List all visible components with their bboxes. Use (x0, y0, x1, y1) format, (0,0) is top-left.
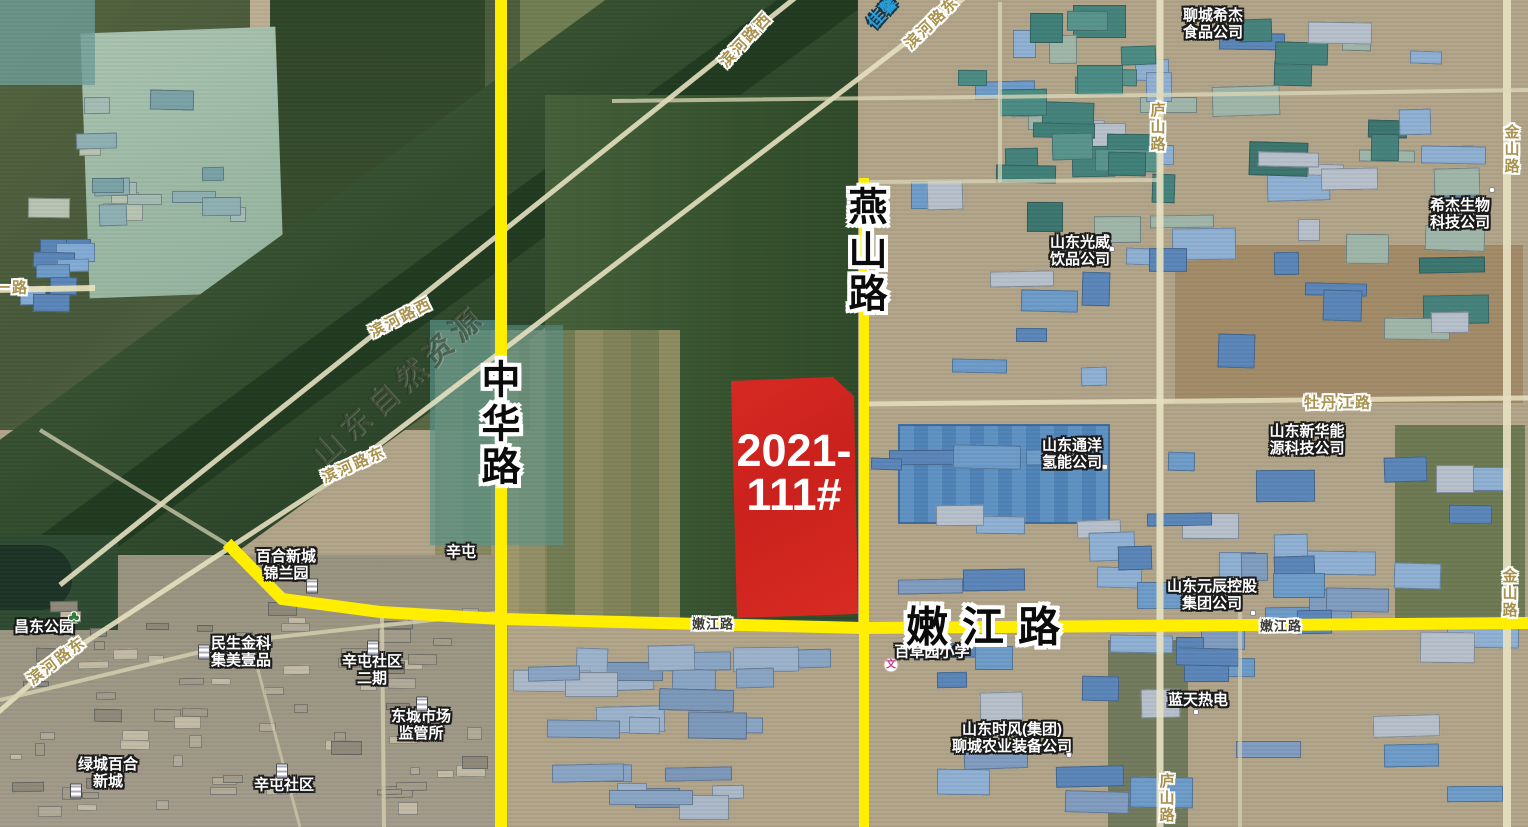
poi-line: 氢能公司 (1042, 454, 1102, 471)
poi-line: 科技公司 (1430, 214, 1490, 231)
poi-label-xinhua-energy: 山东新华能 源科技公司 (1269, 423, 1344, 458)
road-label-zhonghua: 中华路 (478, 359, 524, 490)
road-label-lushan: 庐山路 (1150, 103, 1167, 153)
poi-line: 源科技公司 (1269, 440, 1344, 457)
poi-dot (1066, 752, 1072, 758)
building-icon (416, 697, 428, 712)
poi-label-xintun-shequ: 辛屯社区 (254, 776, 314, 793)
poi-line: 绿城百合 (78, 756, 138, 773)
building-icon (306, 579, 318, 594)
poi-line: 饮品公司 (1050, 251, 1110, 268)
poi-line: 聊城农业装备公司 (952, 738, 1072, 755)
road-label-mudanjiang: 牡丹江路 (1304, 396, 1372, 411)
poi-line: 监管所 (391, 725, 451, 742)
poi-line: 辛屯 (446, 543, 476, 560)
poi-line: 昌东公园 (14, 618, 74, 635)
poi-label-yuanchen: 山东元辰控股 集团公司 (1167, 578, 1257, 613)
poi-line: 新城 (78, 773, 138, 790)
nenjiang-road-highlight (227, 543, 1528, 628)
poi-line: 百合新城 (256, 548, 316, 565)
poi-label-xintun: 辛屯 (446, 543, 476, 560)
poi-label-guangwei: 山东光威 饮品公司 (1050, 234, 1110, 269)
poi-line: 民生金科 (211, 635, 271, 652)
poi-label-lantian: 蓝天热电 (1168, 691, 1228, 708)
poi-line: 二期 (342, 670, 402, 687)
road-label-jinshan: 金山路 (1502, 569, 1519, 619)
road-label-yanshan: 燕山路 (845, 186, 891, 317)
poi-line: 辛屯社区 (254, 776, 314, 793)
building-icon (367, 641, 379, 656)
building-icon (276, 764, 288, 779)
poi-label-xintun-erqi: 辛屯社区 二期 (342, 653, 402, 688)
poi-label-baihe-jinlan: 百合新城 锦兰园 (256, 548, 316, 583)
poi-label-tongyang: 山东通洋 氢能公司 (1042, 437, 1102, 472)
poi-line: 山东新华能 (1269, 423, 1344, 440)
poi-label-lvcheng-baihe: 绿城百合 新城 (78, 756, 138, 791)
road-label-lushan: 庐山路 (1159, 774, 1176, 824)
building-icon (198, 645, 210, 660)
poi-line: 山东时风(集团) (952, 721, 1072, 738)
poi-dot (1109, 246, 1115, 252)
road-label-nenjiang-small: 嫩江路 (1260, 620, 1302, 633)
satellite-map-canvas[interactable]: 2021- 111# 山东自然资源 中华路 燕山路 嫩江路 滨河路西 滨河路东 … (0, 0, 1528, 827)
parcel-id-line2: 111# (723, 473, 865, 517)
school-icon: 文 (884, 658, 899, 673)
poi-label-cj-bio: 希杰生物 科技公司 (1430, 197, 1490, 232)
poi-line: 山东元辰控股 (1167, 578, 1257, 595)
poi-line: 希杰生物 (1430, 197, 1490, 214)
poi-line: 集团公司 (1167, 595, 1257, 612)
poi-line: 山东通洋 (1042, 437, 1102, 454)
poi-line: 山东光威 (1050, 234, 1110, 251)
road-label-yilu: 一路 (0, 281, 29, 296)
poi-dot (1489, 187, 1495, 193)
road-label-nenjiang: 嫩江路 (906, 603, 1074, 650)
poi-dot (1102, 464, 1108, 470)
poi-label-shifeng: 山东时风(集团) 聊城农业装备公司 (952, 721, 1072, 756)
poi-label-liaocheng-cj-food: 聊城希杰 食品公司 (1183, 7, 1243, 42)
poi-line: 食品公司 (1183, 24, 1243, 41)
road-label-nenjiang-small: 嫩江路 (692, 618, 734, 631)
poi-line: 聊城希杰 (1183, 7, 1243, 24)
poi-dot (1250, 610, 1256, 616)
parcel-id-line1: 2021- (723, 429, 865, 473)
poi-label-dongcheng-market: 东城市场 监管所 (391, 708, 451, 743)
poi-dot (1193, 709, 1199, 715)
road-label-jinshan: 金山路 (1504, 125, 1521, 175)
poi-line: 蓝天热电 (1168, 691, 1228, 708)
park-tree-icon: ♣ (68, 609, 79, 626)
poi-line: 集美壹品 (211, 652, 271, 669)
poi-label-changdong-park: 昌东公园 (14, 618, 74, 635)
building-icon (70, 784, 82, 799)
parcel-id-label: 2021- 111# (723, 429, 865, 517)
poi-label-minsheng: 民生金科 集美壹品 (211, 635, 271, 670)
